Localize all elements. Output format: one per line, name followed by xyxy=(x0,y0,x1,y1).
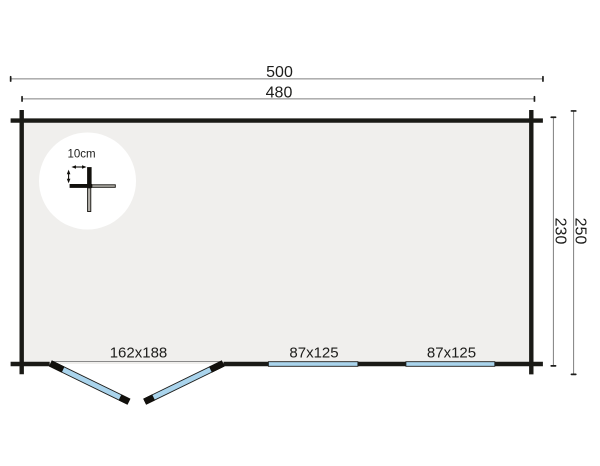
svg-text:87x125: 87x125 xyxy=(427,345,476,362)
svg-text:162x188: 162x188 xyxy=(110,344,168,361)
svg-text:480: 480 xyxy=(266,84,293,101)
svg-text:230: 230 xyxy=(551,218,568,245)
svg-text:500: 500 xyxy=(266,64,293,81)
svg-text:10cm: 10cm xyxy=(67,148,95,160)
svg-text:87x125: 87x125 xyxy=(289,345,338,362)
svg-text:250: 250 xyxy=(572,218,589,245)
